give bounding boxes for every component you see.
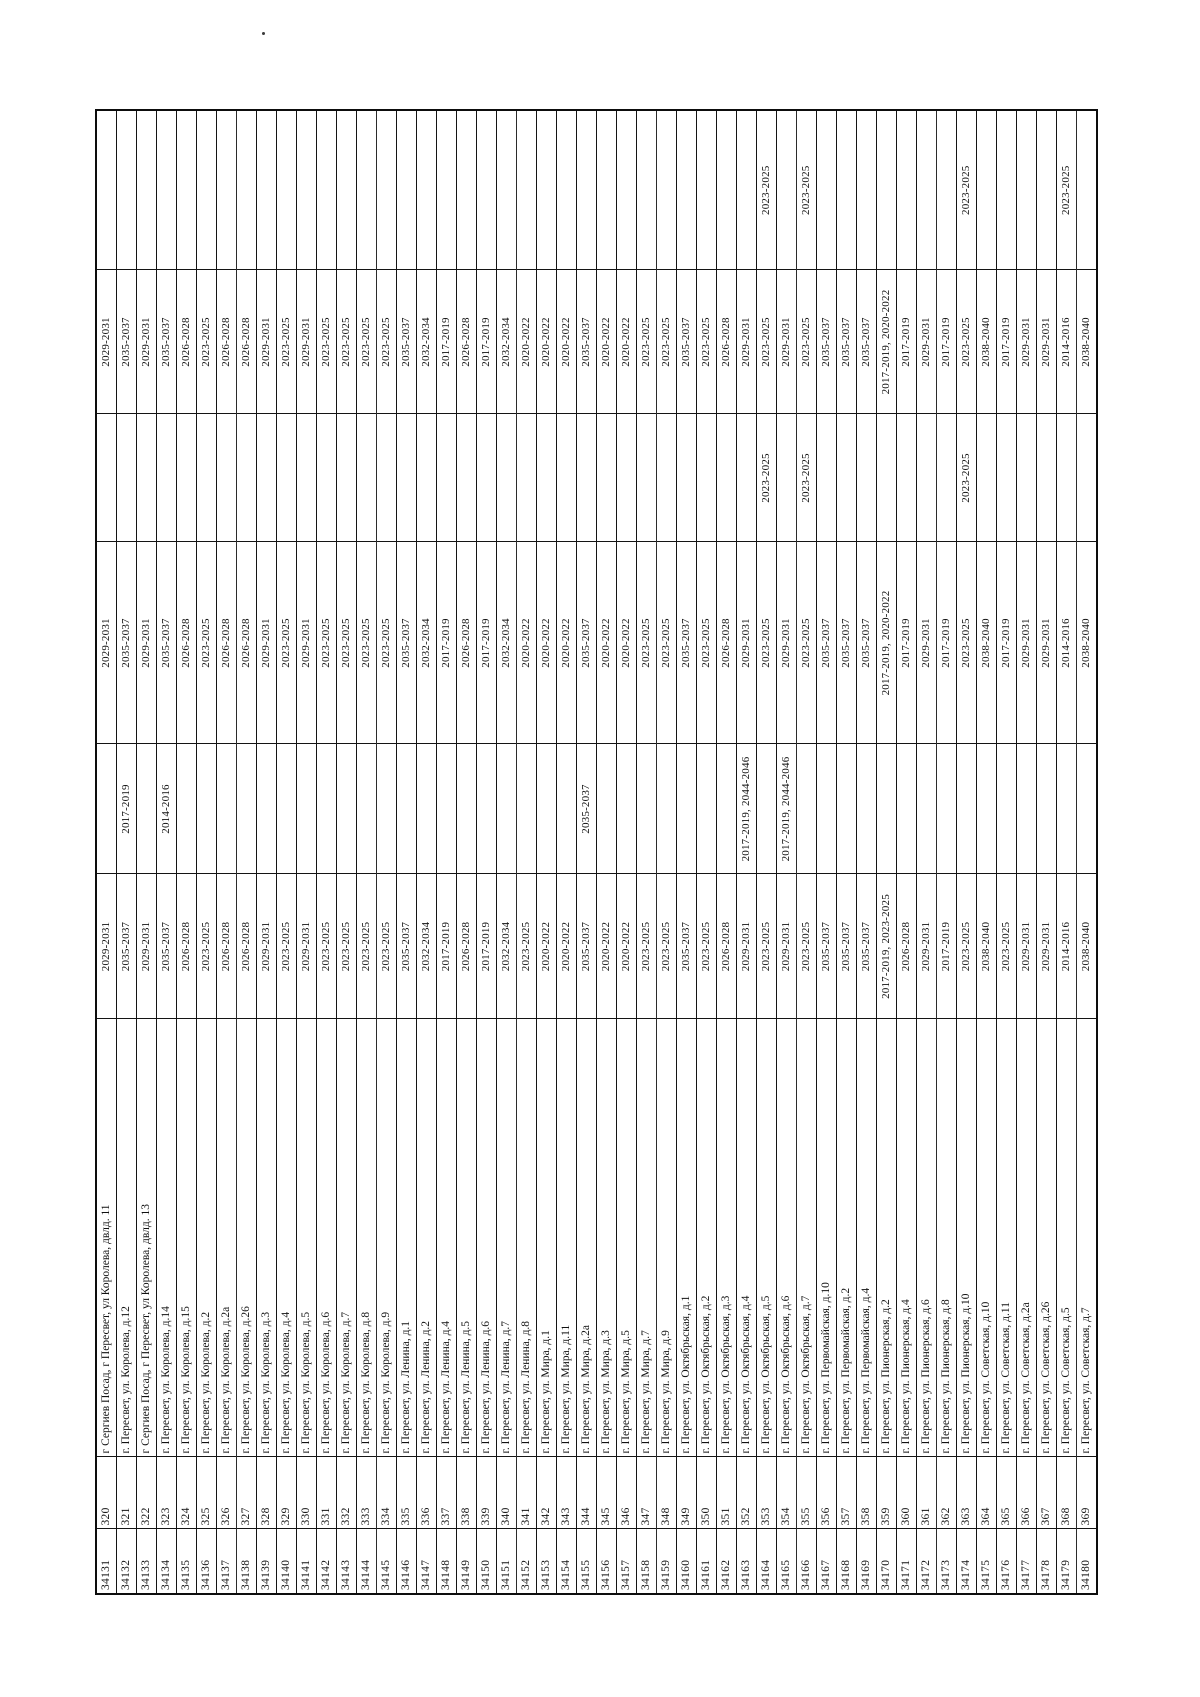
cell-period-6: [96, 110, 117, 270]
table-row: 34162351г. Пересвет, ул. Октябрьская, д.…: [717, 110, 737, 1594]
table-row: 34137326г. Пересвет, ул. Королева, д.2а2…: [217, 110, 237, 1594]
cell-row-number: 361: [917, 1457, 937, 1529]
cell-period-4: [737, 414, 757, 542]
cell-period-5: 2017-2019: [937, 270, 957, 414]
cell-period-3: 2029-2031: [777, 542, 797, 744]
cell-period-2: 2017-2019: [117, 744, 137, 874]
cell-period-2: [337, 744, 357, 874]
cell-object-id: 34145: [377, 1529, 397, 1594]
cell-row-number: 364: [977, 1457, 997, 1529]
cell-period-3: 2035-2037: [117, 542, 137, 744]
cell-period-1: 2023-2025: [357, 874, 377, 1019]
table-row: 34131320г Сергиев Посад, г Пересвет, ул …: [96, 110, 117, 1594]
cell-period-4: [917, 414, 937, 542]
cell-row-number: 328: [257, 1457, 277, 1529]
cell-period-5: 2023-2025: [697, 270, 717, 414]
cell-period-2: 2035-2037: [577, 744, 597, 874]
cell-period-3: 2023-2025: [277, 542, 297, 744]
cell-period-2: [997, 744, 1017, 874]
cell-period-4: [637, 414, 657, 542]
cell-period-1: 2023-2025: [957, 874, 977, 1019]
cell-period-1: 2032-2034: [497, 874, 517, 1019]
cell-period-4: [417, 414, 437, 542]
cell-period-1: 2029-2031: [297, 874, 317, 1019]
table-row: 34165354г. Пересвет, ул. Октябрьская, д.…: [777, 110, 797, 1594]
cell-period-3: 2029-2031: [137, 542, 157, 744]
cell-period-1: 2023-2025: [697, 874, 717, 1019]
cell-period-1: 2026-2028: [457, 874, 477, 1019]
cell-period-6: [857, 110, 877, 270]
cell-period-5: 2035-2037: [817, 270, 837, 414]
cell-period-2: [697, 744, 717, 874]
cell-period-1: 2032-2034: [417, 874, 437, 1019]
cell-period-1: 2020-2022: [617, 874, 637, 1019]
cell-period-1: 2023-2025: [637, 874, 657, 1019]
cell-object-id: 34156: [597, 1529, 617, 1594]
cell-period-6: [577, 110, 597, 270]
cell-period-5: 2023-2025: [357, 270, 377, 414]
cell-period-4: [777, 414, 797, 542]
cell-address: г. Пересвет, ул. Ленина, д.1: [397, 1019, 417, 1457]
cell-period-3: 2029-2031: [297, 542, 317, 744]
cell-object-id: 34138: [237, 1529, 257, 1594]
cell-row-number: 359: [877, 1457, 897, 1529]
cell-period-1: 2029-2031: [777, 874, 797, 1019]
cell-period-3: 2035-2037: [817, 542, 837, 744]
cell-period-4: [137, 414, 157, 542]
cell-period-6: [717, 110, 737, 270]
cell-period-4: [617, 414, 637, 542]
cell-period-4: [677, 414, 697, 542]
cell-period-6: [457, 110, 477, 270]
cell-period-6: [217, 110, 237, 270]
cell-period-6: 2023-2025: [1057, 110, 1077, 270]
cell-object-id: 34175: [977, 1529, 997, 1594]
cell-period-5: 2026-2028: [457, 270, 477, 414]
cell-period-4: [897, 414, 917, 542]
cell-period-5: 2029-2031: [917, 270, 937, 414]
cell-period-1: 2023-2025: [797, 874, 817, 1019]
cell-object-id: 34176: [997, 1529, 1017, 1594]
cell-period-3: 2023-2025: [197, 542, 217, 744]
cell-period-2: [837, 744, 857, 874]
cell-period-3: 2026-2028: [237, 542, 257, 744]
cell-address: г. Пересвет, ул. Октябрьская, д.5: [757, 1019, 777, 1457]
cell-period-5: 2026-2028: [177, 270, 197, 414]
cell-period-2: [1037, 744, 1057, 874]
cell-period-6: [997, 110, 1017, 270]
table-row: 34180369г. Пересвет, ул. Советская, д.72…: [1077, 110, 1098, 1594]
cell-row-number: 335: [397, 1457, 417, 1529]
cell-period-4: [337, 414, 357, 542]
cell-address: г. Пересвет, ул. Пионерская, д.2: [877, 1019, 897, 1457]
cell-period-4: [397, 414, 417, 542]
table-row: 34176365г. Пересвет, ул. Советская, д.11…: [997, 110, 1017, 1594]
cell-address: г. Пересвет, ул. Советская, д.26: [1037, 1019, 1057, 1457]
cell-period-2: [657, 744, 677, 874]
cell-period-5: 2038-2040: [1077, 270, 1098, 414]
cell-period-3: 2020-2022: [517, 542, 537, 744]
cell-row-number: 334: [377, 1457, 397, 1529]
cell-period-2: [517, 744, 537, 874]
cell-object-id: 34132: [117, 1529, 137, 1594]
table-row: 34145334г. Пересвет, ул. Королева, д.920…: [377, 110, 397, 1594]
cell-period-4: [557, 414, 577, 542]
cell-address: г. Пересвет, ул. Королева, д.4: [277, 1019, 297, 1457]
cell-period-4: [817, 414, 837, 542]
cell-period-1: 2023-2025: [517, 874, 537, 1019]
cell-object-id: 34131: [96, 1529, 117, 1594]
cell-period-5: 2017-2019: [437, 270, 457, 414]
cell-object-id: 34152: [517, 1529, 537, 1594]
cell-period-3: 2035-2037: [677, 542, 697, 744]
cell-period-1: 2017-2019: [937, 874, 957, 1019]
cell-period-2: [597, 744, 617, 874]
cell-period-4: 2023-2025: [957, 414, 977, 542]
cell-address: г. Пересвет, ул. Королева, д.5: [297, 1019, 317, 1457]
cell-period-2: [617, 744, 637, 874]
cell-row-number: 343: [557, 1457, 577, 1529]
cell-period-3: 2029-2031: [737, 542, 757, 744]
cell-period-5: 2035-2037: [857, 270, 877, 414]
cell-period-5: 2023-2025: [797, 270, 817, 414]
cell-period-4: [997, 414, 1017, 542]
cell-period-6: [397, 110, 417, 270]
cell-period-3: 2017-2019, 2020-2022: [877, 542, 897, 744]
cell-period-2: [797, 744, 817, 874]
cell-address: г Сергиев Посад, г Пересвет, ул Королева…: [137, 1019, 157, 1457]
cell-period-6: [237, 110, 257, 270]
rotated-table-inner: 34131320г Сергиев Посад, г Пересвет, ул …: [95, 111, 1089, 1595]
cell-address: г. Пересвет, ул. Мира, д.7: [637, 1019, 657, 1457]
cell-period-5: 2023-2025: [317, 270, 337, 414]
cell-period-3: 2023-2025: [957, 542, 977, 744]
cell-row-number: 352: [737, 1457, 757, 1529]
cell-address: г. Пересвет, ул. Королева, д.9: [377, 1019, 397, 1457]
cell-period-1: 2029-2031: [1017, 874, 1037, 1019]
cell-period-4: [217, 414, 237, 542]
cell-row-number: 367: [1037, 1457, 1057, 1529]
cell-object-id: 34153: [537, 1529, 557, 1594]
cell-period-1: 2023-2025: [197, 874, 217, 1019]
cell-row-number: 348: [657, 1457, 677, 1529]
cell-period-6: [437, 110, 457, 270]
cell-period-2: [237, 744, 257, 874]
cell-object-id: 34147: [417, 1529, 437, 1594]
cell-period-2: [557, 744, 577, 874]
table-row: 34156345г. Пересвет, ул. Мира, д.32020-2…: [597, 110, 617, 1594]
cell-period-1: 2035-2037: [677, 874, 697, 1019]
cell-period-6: [597, 110, 617, 270]
cell-period-5: 2029-2031: [257, 270, 277, 414]
cell-period-6: [697, 110, 717, 270]
cell-period-2: [817, 744, 837, 874]
cell-address: г. Пересвет, ул. Мира, д.3: [597, 1019, 617, 1457]
cell-address: г. Пересвет, ул. Королева, д.15: [177, 1019, 197, 1457]
cell-object-id: 34164: [757, 1529, 777, 1594]
cell-period-4: [96, 414, 117, 542]
cell-period-6: [897, 110, 917, 270]
scan-artifact-dot: .: [262, 32, 265, 35]
cell-object-id: 34161: [697, 1529, 717, 1594]
cell-object-id: 34137: [217, 1529, 237, 1594]
cell-period-5: 2032-2034: [417, 270, 437, 414]
cell-address: г. Пересвет, ул. Пионерская, д.6: [917, 1019, 937, 1457]
cell-period-4: [977, 414, 997, 542]
cell-period-4: [157, 414, 177, 542]
cell-period-1: 2020-2022: [537, 874, 557, 1019]
cell-object-id: 34151: [497, 1529, 517, 1594]
cell-period-4: [937, 414, 957, 542]
cell-period-4: [1017, 414, 1037, 542]
cell-period-6: [137, 110, 157, 270]
cell-period-5: 2017-2019, 2020-2022: [877, 270, 897, 414]
cell-address: г. Пересвет, ул. Королева, д.7: [337, 1019, 357, 1457]
cell-period-4: [877, 414, 897, 542]
cell-address: г. Пересвет, ул. Ленина, д.2: [417, 1019, 437, 1457]
cell-period-5: 2017-2019: [897, 270, 917, 414]
cell-period-2: [1017, 744, 1037, 874]
cell-period-6: [617, 110, 637, 270]
cell-period-3: 2017-2019: [997, 542, 1017, 744]
cell-period-6: [777, 110, 797, 270]
cell-period-3: 2023-2025: [697, 542, 717, 744]
cell-period-3: 2029-2031: [96, 542, 117, 744]
cell-period-3: 2020-2022: [557, 542, 577, 744]
cell-period-2: [177, 744, 197, 874]
cell-period-6: [317, 110, 337, 270]
cell-period-5: 2035-2037: [577, 270, 597, 414]
cell-period-3: 2032-2034: [417, 542, 437, 744]
cell-row-number: 351: [717, 1457, 737, 1529]
cell-address: г. Пересвет, ул. Пионерская, д.8: [937, 1019, 957, 1457]
cell-period-4: [237, 414, 257, 542]
cell-address: г. Пересвет, ул. Первомайская, д.2: [837, 1019, 857, 1457]
cell-object-id: 34155: [577, 1529, 597, 1594]
cell-object-id: 34136: [197, 1529, 217, 1594]
table-row: 34151340г. Пересвет, ул. Ленина, д.72032…: [497, 110, 517, 1594]
table-row: 34136325г. Пересвет, ул. Королева, д.220…: [197, 110, 217, 1594]
table-row: 34174363г. Пересвет, ул. Пионерская, д.1…: [957, 110, 977, 1594]
cell-object-id: 34148: [437, 1529, 457, 1594]
cell-period-1: 2035-2037: [397, 874, 417, 1019]
cell-period-1: 2026-2028: [897, 874, 917, 1019]
cell-row-number: 321: [117, 1457, 137, 1529]
cell-period-2: [377, 744, 397, 874]
cell-address: г. Пересвет, ул. Пионерская, д.4: [897, 1019, 917, 1457]
cell-period-5: 2020-2022: [597, 270, 617, 414]
cell-address: г. Пересвет, ул. Октябрьская, д.2: [697, 1019, 717, 1457]
cell-period-3: 2017-2019: [477, 542, 497, 744]
cell-period-2: [937, 744, 957, 874]
cell-period-1: 2035-2037: [837, 874, 857, 1019]
cell-period-1: 2035-2037: [817, 874, 837, 1019]
cell-period-6: [197, 110, 217, 270]
cell-row-number: 336: [417, 1457, 437, 1529]
cell-period-5: 2029-2031: [96, 270, 117, 414]
cell-object-id: 34134: [157, 1529, 177, 1594]
cell-object-id: 34158: [637, 1529, 657, 1594]
cell-row-number: 332: [337, 1457, 357, 1529]
cell-row-number: 362: [937, 1457, 957, 1529]
cell-period-2: [757, 744, 777, 874]
cell-period-5: 2035-2037: [677, 270, 697, 414]
cell-object-id: 34159: [657, 1529, 677, 1594]
cell-period-5: 2020-2022: [617, 270, 637, 414]
cell-period-4: 2023-2025: [757, 414, 777, 542]
cell-period-5: 2023-2025: [377, 270, 397, 414]
cell-period-1: 2023-2025: [317, 874, 337, 1019]
table-row: 34173362г. Пересвет, ул. Пионерская, д.8…: [937, 110, 957, 1594]
cell-period-1: 2023-2025: [657, 874, 677, 1019]
cell-period-6: 2023-2025: [757, 110, 777, 270]
cell-period-6: [637, 110, 657, 270]
cell-object-id: 34171: [897, 1529, 917, 1594]
cell-row-number: 368: [1057, 1457, 1077, 1529]
cell-address: г. Пересвет, ул. Королева, д.3: [257, 1019, 277, 1457]
cell-period-2: [397, 744, 417, 874]
table-row: 34138327г. Пересвет, ул. Королева, д.262…: [237, 110, 257, 1594]
table-row: 34164353г. Пересвет, ул. Октябрьская, д.…: [757, 110, 777, 1594]
cell-period-1: 2035-2037: [577, 874, 597, 1019]
cell-period-6: [497, 110, 517, 270]
cell-period-6: [377, 110, 397, 270]
cell-period-5: 2023-2025: [657, 270, 677, 414]
cell-object-id: 34174: [957, 1529, 977, 1594]
cell-period-4: [1037, 414, 1057, 542]
cell-address: г. Пересвет, ул. Королева, д.14: [157, 1019, 177, 1457]
cell-object-id: 34163: [737, 1529, 757, 1594]
cell-address: г. Пересвет, ул. Октябрьская, д.4: [737, 1019, 757, 1457]
cell-period-2: [897, 744, 917, 874]
cell-object-id: 34160: [677, 1529, 697, 1594]
cell-address: г. Пересвет, ул. Королева, д.12: [117, 1019, 137, 1457]
cell-address: г. Пересвет, ул. Первомайская, д.4: [857, 1019, 877, 1457]
cell-period-6: [977, 110, 997, 270]
cell-address: г. Пересвет, ул. Королева, д.8: [357, 1019, 377, 1457]
cell-period-1: 2026-2028: [717, 874, 737, 1019]
cell-period-3: 2020-2022: [537, 542, 557, 744]
cell-period-5: 2017-2019: [477, 270, 497, 414]
cell-period-3: 2038-2040: [1077, 542, 1098, 744]
cell-address: г. Пересвет, ул. Королева, д.2: [197, 1019, 217, 1457]
table-row: 34133322г Сергиев Посад, г Пересвет, ул …: [137, 110, 157, 1594]
cell-period-5: 2029-2031: [1037, 270, 1057, 414]
cell-period-1: 2035-2037: [157, 874, 177, 1019]
cell-period-3: 2029-2031: [1037, 542, 1057, 744]
cell-period-6: [1017, 110, 1037, 270]
cell-period-2: [137, 744, 157, 874]
table-row: 34157346г. Пересвет, ул. Мира, д.52020-2…: [617, 110, 637, 1594]
cell-object-id: 34168: [837, 1529, 857, 1594]
table-row: 34167356г. Пересвет, ул. Первомайская, д…: [817, 110, 837, 1594]
table-row: 34148337г. Пересвет, ул. Ленина, д.42017…: [437, 110, 457, 1594]
cell-object-id: 34179: [1057, 1529, 1077, 1594]
cell-period-5: 2023-2025: [337, 270, 357, 414]
cell-period-1: 2023-2025: [277, 874, 297, 1019]
cell-period-1: 2035-2037: [117, 874, 137, 1019]
cell-period-5: 2038-2040: [977, 270, 997, 414]
cell-period-5: 2017-2019: [997, 270, 1017, 414]
cell-period-2: [977, 744, 997, 874]
cell-period-1: 2026-2028: [217, 874, 237, 1019]
cell-period-2: [477, 744, 497, 874]
cell-object-id: 34177: [1017, 1529, 1037, 1594]
table-row: 34178367г. Пересвет, ул. Советская, д.26…: [1037, 110, 1057, 1594]
cell-period-5: 2023-2025: [757, 270, 777, 414]
cell-object-id: 34172: [917, 1529, 937, 1594]
cell-object-id: 34180: [1077, 1529, 1098, 1594]
table-row: 34146335г. Пересвет, ул. Ленина, д.12035…: [397, 110, 417, 1594]
cell-object-id: 34143: [337, 1529, 357, 1594]
table-row: 34152341г. Пересвет, ул. Ленина, д.82023…: [517, 110, 537, 1594]
cell-period-6: [417, 110, 437, 270]
cell-row-number: 357: [837, 1457, 857, 1529]
cell-period-4: [277, 414, 297, 542]
cell-period-6: [177, 110, 197, 270]
cell-period-5: 2023-2025: [277, 270, 297, 414]
cell-period-3: 2035-2037: [857, 542, 877, 744]
cell-object-id: 34141: [297, 1529, 317, 1594]
cell-period-2: 2014-2016: [157, 744, 177, 874]
cell-period-6: [537, 110, 557, 270]
cell-period-3: 2026-2028: [457, 542, 477, 744]
cell-object-id: 34157: [617, 1529, 637, 1594]
cell-period-6: [1077, 110, 1098, 270]
cell-object-id: 34149: [457, 1529, 477, 1594]
cell-address: г. Пересвет, ул. Пионерская, д.10: [957, 1019, 977, 1457]
cell-period-6: [357, 110, 377, 270]
cell-object-id: 34165: [777, 1529, 797, 1594]
cell-address: г. Пересвет, ул. Советская, д.11: [997, 1019, 1017, 1457]
cell-period-2: [1057, 744, 1077, 874]
cell-period-2: [277, 744, 297, 874]
cell-period-4: [717, 414, 737, 542]
cell-period-5: 2035-2037: [397, 270, 417, 414]
cell-period-5: 2020-2022: [557, 270, 577, 414]
cell-period-1: 2014-2016: [1057, 874, 1077, 1019]
table-row: 34139328г. Пересвет, ул. Королева, д.320…: [257, 110, 277, 1594]
cell-period-5: 2020-2022: [517, 270, 537, 414]
cell-period-2: [257, 744, 277, 874]
cell-object-id: 34150: [477, 1529, 497, 1594]
cell-address: г. Пересвет, ул. Октябрьская, д.3: [717, 1019, 737, 1457]
cell-period-3: 2035-2037: [157, 542, 177, 744]
cell-period-2: [457, 744, 477, 874]
cell-address: г. Пересвет, ул. Мира, д.11: [557, 1019, 577, 1457]
cell-row-number: 369: [1077, 1457, 1098, 1529]
cell-period-2: 2017-2019, 2044-2046: [737, 744, 757, 874]
cell-period-3: 2026-2028: [717, 542, 737, 744]
table-row: 34163352г. Пересвет, ул. Октябрьская, д.…: [737, 110, 757, 1594]
cell-period-2: [297, 744, 317, 874]
cell-row-number: 345: [597, 1457, 617, 1529]
cell-address: г. Пересвет, ул. Ленина, д.4: [437, 1019, 457, 1457]
table-row: 34171360г. Пересвет, ул. Пионерская, д.4…: [897, 110, 917, 1594]
cell-period-3: 2017-2019: [437, 542, 457, 744]
cell-period-3: 2023-2025: [317, 542, 337, 744]
cell-address: г. Пересвет, ул. Октябрьская, д.7: [797, 1019, 817, 1457]
cell-row-number: 366: [1017, 1457, 1037, 1529]
cell-period-1: 2023-2025: [377, 874, 397, 1019]
cell-period-3: 2023-2025: [757, 542, 777, 744]
cell-row-number: 326: [217, 1457, 237, 1529]
cell-period-1: 2029-2031: [1037, 874, 1057, 1019]
cell-row-number: 363: [957, 1457, 977, 1529]
cell-period-6: [817, 110, 837, 270]
cell-period-3: 2023-2025: [357, 542, 377, 744]
cell-row-number: 340: [497, 1457, 517, 1529]
